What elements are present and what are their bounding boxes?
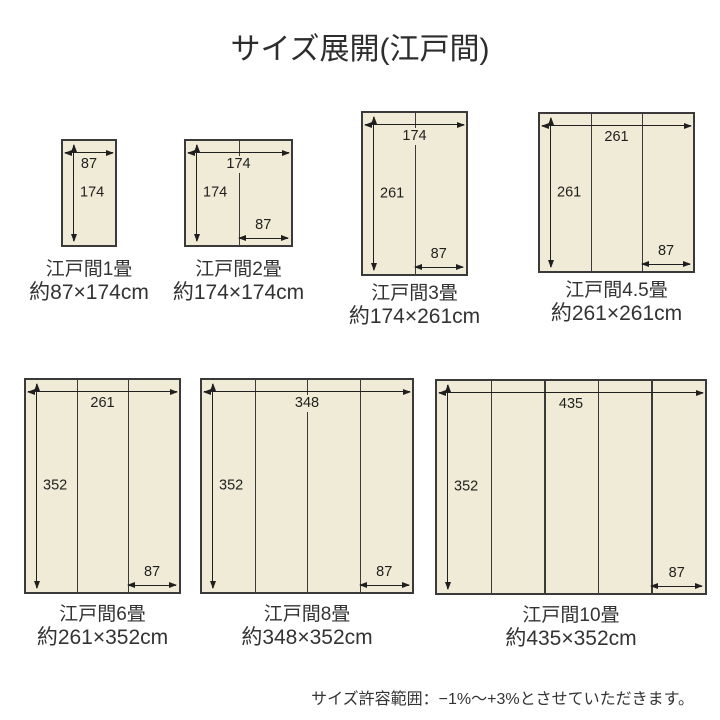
- diagram-edoma-8jo: 348 352 87 江戸間8畳 約348×352cm: [200, 378, 414, 594]
- mat-divider: [77, 380, 78, 592]
- width-arrow: [204, 391, 410, 392]
- width-arrow: [188, 152, 289, 153]
- mat-divider: [360, 380, 361, 592]
- mat-divider: [598, 381, 599, 593]
- panel-width-value: 87: [415, 246, 464, 263]
- height-value: 261: [555, 183, 583, 202]
- panel-width-arrow: [415, 267, 464, 268]
- mat-divider: [651, 381, 652, 593]
- diagram-name: 江戸間6畳: [37, 604, 168, 626]
- height-arrow: [36, 384, 37, 588]
- diagram-caption: 江戸間3畳 約174×261cm: [349, 283, 480, 329]
- diagram-size: 約174×261cm: [349, 305, 480, 329]
- width-value: 261: [86, 395, 118, 412]
- width-arrow: [365, 124, 464, 125]
- mat-divider: [128, 380, 129, 592]
- diagram-caption: 江戸間6畳 約261×352cm: [37, 604, 168, 650]
- width-value: 174: [222, 156, 254, 173]
- diagram-size: 約261×261cm: [551, 302, 682, 326]
- height-arrow: [196, 145, 197, 241]
- height-arrow: [212, 384, 213, 588]
- width-value: 435: [555, 396, 587, 413]
- width-arrow: [28, 391, 177, 392]
- diagram-caption: 江戸間2畳 約174×174cm: [173, 259, 304, 305]
- diagram-size: 約348×352cm: [241, 626, 372, 650]
- diagram-name: 江戸間4.5畳: [551, 280, 682, 302]
- diagram-edoma-1jo: 87 174 江戸間1畳 約87×174cm: [61, 139, 117, 247]
- height-arrow: [550, 118, 551, 267]
- height-value: 352: [217, 477, 245, 496]
- panel-width-value: 87: [651, 565, 702, 582]
- mat-divider: [255, 380, 256, 592]
- diagram-size: 約87×174cm: [29, 281, 149, 305]
- diagram-edoma-3jo: 174 261 87 江戸間3畳 約174×261cm: [361, 111, 468, 276]
- diagram-edoma-2jo: 174 174 87 江戸間2畳 約174×174cm: [184, 139, 293, 247]
- width-arrow: [542, 125, 691, 126]
- height-arrow: [373, 117, 374, 270]
- height-value: 352: [452, 478, 480, 497]
- diagram-edoma-6jo: 261 352 87 江戸間6畳 約261×352cm: [24, 378, 181, 594]
- diagram-size: 約435×352cm: [505, 627, 636, 651]
- height-arrow: [73, 145, 74, 241]
- diagram-caption: 江戸間1畳 約87×174cm: [29, 259, 149, 305]
- panel-width-arrow: [360, 585, 410, 586]
- mat-divider: [307, 380, 308, 592]
- diagram-size: 約261×352cm: [37, 626, 168, 650]
- diagram-name: 江戸間1畳: [29, 259, 149, 281]
- height-value: 352: [41, 477, 69, 496]
- panel-width-value: 87: [128, 564, 176, 581]
- panel-width-arrow: [128, 585, 176, 586]
- width-value: 87: [77, 156, 101, 173]
- panel-width-arrow: [642, 264, 690, 265]
- height-arrow: [447, 385, 448, 589]
- diagram-name: 江戸間10畳: [505, 605, 636, 627]
- size-tolerance-note: サイズ許容範囲：−1%〜+3%とさせていただきます。: [311, 685, 694, 709]
- panel-width-value: 87: [642, 243, 690, 260]
- diagram-caption: 江戸間4.5畳 約261×261cm: [551, 280, 682, 326]
- page-title: サイズ展開(江戸間): [0, 24, 720, 68]
- diagram-edoma-4-5jo: 261 261 87 江戸間4.5畳 約261×261cm: [538, 112, 695, 273]
- mat-divider: [544, 381, 545, 593]
- diagram-name: 江戸間3畳: [349, 283, 480, 305]
- height-value: 261: [378, 184, 406, 203]
- height-value: 174: [78, 184, 106, 203]
- diagram-name: 江戸間2畳: [173, 259, 304, 281]
- diagram-caption: 江戸間8畳 約348×352cm: [241, 604, 372, 650]
- width-value: 174: [398, 128, 430, 145]
- diagram-name: 江戸間8畳: [241, 604, 372, 626]
- width-arrow: [439, 392, 703, 393]
- width-value: 348: [291, 395, 323, 412]
- mat-divider: [591, 114, 592, 271]
- panel-width-value: 87: [239, 217, 289, 234]
- panel-width-value: 87: [360, 564, 410, 581]
- diagram-size: 約174×174cm: [173, 281, 304, 305]
- mat-divider: [491, 381, 492, 593]
- panel-width-arrow: [651, 586, 702, 587]
- width-value: 261: [600, 129, 632, 146]
- diagram-edoma-10jo: 435 352 87 江戸間10畳 約435×352cm: [435, 379, 707, 595]
- diagram-caption: 江戸間10畳 約435×352cm: [505, 605, 636, 651]
- panel-width-arrow: [239, 238, 289, 239]
- height-value: 174: [201, 184, 229, 203]
